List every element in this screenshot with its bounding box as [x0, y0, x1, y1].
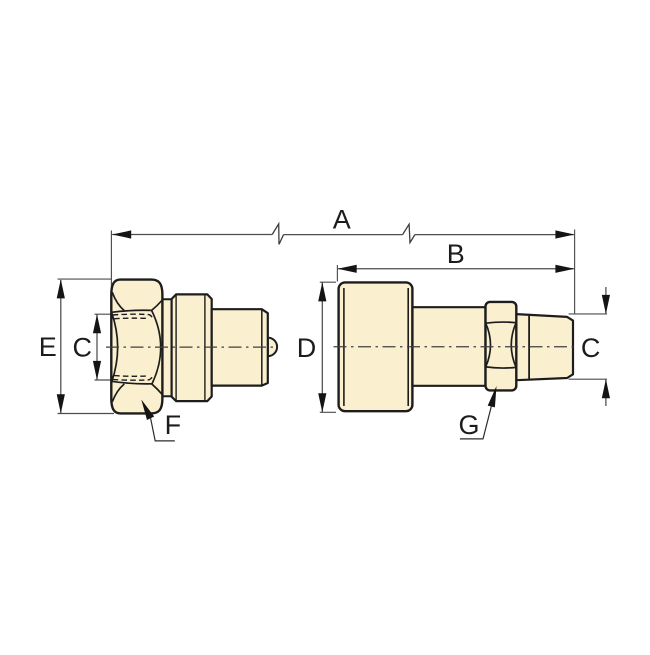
svg-text:A: A: [333, 205, 351, 235]
svg-text:F: F: [165, 410, 182, 440]
svg-text:G: G: [458, 410, 479, 440]
svg-text:D: D: [297, 333, 317, 363]
svg-text:C: C: [72, 332, 92, 362]
svg-text:E: E: [39, 332, 57, 362]
svg-text:B: B: [447, 239, 465, 269]
svg-text:C: C: [581, 333, 601, 363]
